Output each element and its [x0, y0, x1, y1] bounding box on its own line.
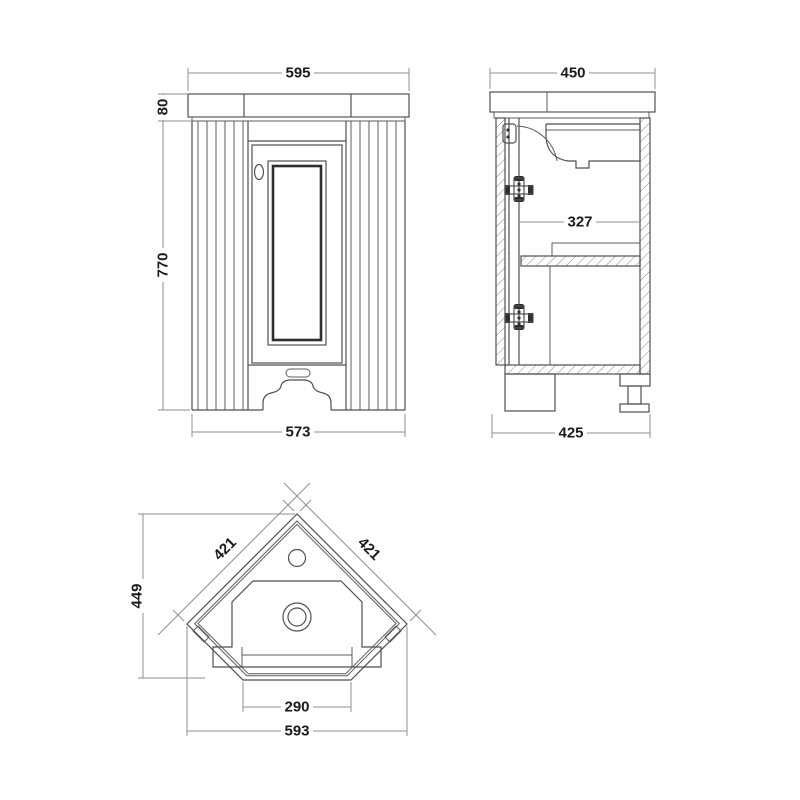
door-panel-bevel: [268, 161, 326, 345]
dim-side-cabinet-depth: 425: [558, 425, 583, 442]
bottom-panel-section: [505, 365, 640, 374]
plinth-arch-cutout: [263, 380, 331, 410]
dim-side-internal-depth: 327: [567, 214, 592, 231]
door-swing-arc: [517, 126, 557, 161]
shelf-section: [521, 256, 640, 266]
right-fluted-panel: [351, 121, 396, 410]
side-dimensions: 450 327 425: [490, 65, 655, 442]
dim-front-worktop-height: 80: [155, 99, 172, 116]
dim-plan-overall-depth: 449: [129, 583, 146, 608]
waste-drain-icon: [283, 603, 311, 631]
basin-section: [546, 124, 640, 168]
tap-hole-icon: [289, 550, 306, 567]
door-section-panel: [496, 118, 505, 365]
dim-plan-overall-width: 593: [284, 723, 309, 740]
back-panel-section: [640, 118, 650, 374]
plan-view: 421 421 449 290 593: [129, 483, 437, 740]
dim-front-cabinet-height: 770: [155, 252, 172, 277]
plan-dimensions: 421 421 449 290 593: [129, 483, 437, 740]
dim-front-cabinet-width: 573: [285, 424, 310, 441]
cabinet-door: [248, 121, 346, 410]
left-fluted-panel: [198, 121, 243, 410]
plinth-vent-slot: [286, 369, 310, 377]
dim-plan-front-width: 290: [284, 699, 309, 716]
front-elevation-view: 595 80 770 573: [155, 65, 410, 441]
door-knob-icon: [255, 165, 264, 180]
worktop-side: [490, 92, 655, 112]
dim-front-overall-width: 595: [285, 65, 310, 82]
drawing-canvas: 595 80 770 573: [0, 0, 800, 800]
side-section-view: 450 327 425: [490, 65, 655, 442]
right-panel-end-cap: [385, 626, 401, 642]
dim-side-worktop-depth: 450: [560, 65, 585, 82]
basin-bowl: [213, 581, 381, 667]
worktop-front: [188, 94, 409, 117]
technical-drawing-page: 595 80 770 573: [0, 0, 800, 800]
left-panel-end-cap: [193, 626, 209, 642]
plinth: [248, 365, 346, 410]
door-recessed-panel: [273, 166, 321, 340]
plinth-section: [505, 374, 555, 411]
adjustable-foot-icon: [620, 374, 650, 412]
